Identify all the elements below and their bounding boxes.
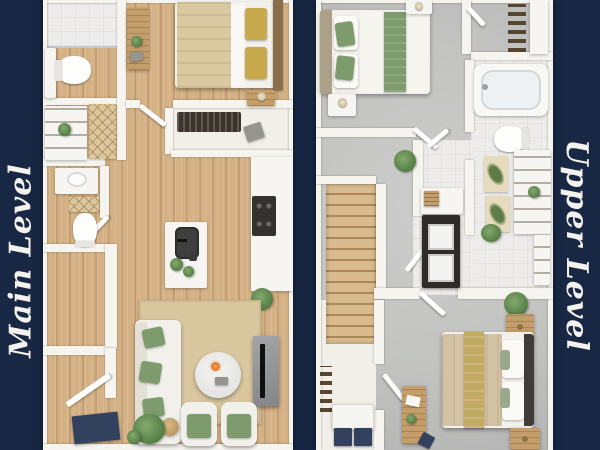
plant (170, 258, 183, 271)
bed-sheet (231, 4, 245, 86)
chair-cushion (187, 414, 211, 438)
tv (260, 344, 265, 398)
pillow (245, 8, 267, 40)
tray (215, 377, 228, 385)
plant (127, 430, 141, 444)
wall (117, 0, 126, 160)
upper-level-label: Upper Level (553, 40, 600, 450)
lamp (257, 92, 266, 101)
plant (528, 186, 540, 198)
plant (481, 224, 501, 242)
accent-pillow (334, 21, 355, 47)
candle (211, 362, 220, 371)
plant (131, 36, 142, 47)
main-level-label: Main Level (0, 60, 43, 450)
wall (165, 108, 173, 154)
accent-pillow (335, 55, 355, 81)
flyer-background: Main Level (0, 0, 600, 450)
runner-rug (89, 104, 116, 159)
wall (43, 346, 105, 355)
headboard (273, 0, 283, 90)
pot (189, 253, 197, 261)
wall (105, 244, 117, 348)
staircase (326, 184, 376, 344)
bathtub-basin (481, 70, 541, 110)
tv-console (253, 336, 279, 406)
fern-bath-mat (484, 156, 508, 192)
lamp (338, 98, 347, 107)
hanging-clothes (320, 366, 332, 412)
wall (316, 128, 416, 137)
hanging-clothes (177, 112, 241, 132)
wall (43, 244, 105, 252)
headboard (524, 334, 534, 426)
plant (394, 150, 416, 172)
knob (522, 436, 528, 442)
storage-bin (334, 428, 352, 446)
wall (374, 410, 384, 450)
plant (504, 292, 528, 316)
upper-level-floor-plan (316, 0, 553, 450)
knob (517, 324, 523, 330)
faucet (482, 84, 488, 90)
headboard (320, 10, 332, 94)
plant (58, 123, 71, 136)
washer-door (428, 224, 454, 250)
throw-pillow (138, 360, 162, 384)
coffee-table (195, 352, 241, 398)
wall (316, 176, 376, 184)
upper-level-label-text: Upper Level (559, 139, 594, 352)
wall (465, 160, 474, 235)
wall (465, 60, 474, 132)
wall (374, 300, 384, 364)
plant (183, 266, 194, 277)
dryer-door (428, 254, 454, 282)
faucet (177, 239, 187, 242)
toilet-tank (75, 241, 95, 247)
wall (43, 444, 293, 450)
chair-cushion (227, 414, 251, 438)
wall (173, 100, 293, 108)
sink (67, 172, 87, 187)
hanging-clothes (508, 4, 526, 52)
wall (100, 166, 109, 218)
lamp (415, 2, 423, 10)
bed-blanket (177, 2, 231, 88)
bed-runner (464, 332, 484, 428)
shower (47, 2, 121, 48)
plant (406, 414, 416, 424)
storage-bin (354, 428, 372, 446)
storage-box (424, 191, 439, 206)
toilet-tank (55, 60, 62, 81)
pillow (245, 47, 267, 79)
bed-runner (384, 12, 406, 92)
wall (374, 288, 420, 299)
wall (376, 184, 386, 296)
wall (171, 150, 293, 157)
accent-pillow (500, 350, 510, 370)
entry-mat (72, 412, 121, 445)
accent-pillow (500, 388, 510, 408)
main-level-label-text: Main Level (4, 163, 39, 357)
bath-mat (69, 197, 99, 212)
closet-shelf (530, 0, 548, 54)
toilet (57, 56, 91, 84)
main-level-floor-plan (43, 0, 293, 450)
stove (252, 196, 276, 236)
toilet-tank (522, 128, 529, 150)
wall (316, 0, 553, 3)
closet-dresser (332, 404, 374, 430)
linen-shelf (534, 235, 550, 285)
